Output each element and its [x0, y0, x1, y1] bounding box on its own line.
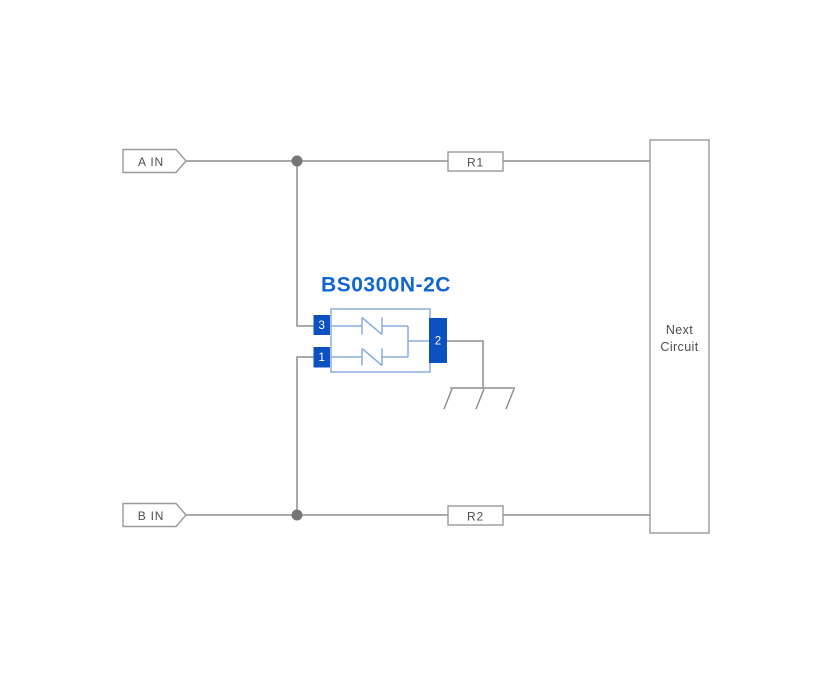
resistor-r2: R2	[448, 506, 503, 525]
pin-2: 2	[429, 318, 447, 363]
next-circuit-box: Next Circuit	[650, 140, 709, 533]
input-flag-b: B IN	[123, 504, 186, 527]
junction-dot-b	[292, 510, 303, 521]
wire-branch-b-to-pin1	[297, 357, 314, 515]
input-label-b: B IN	[138, 509, 165, 523]
pin-1-label: 1	[318, 352, 324, 364]
pin-1: 1	[314, 347, 331, 368]
resistor-r2-label: R2	[467, 509, 484, 523]
input-flag-a: A IN	[123, 150, 186, 173]
junction-dot-a	[292, 156, 303, 167]
pin-2-label: 2	[435, 336, 441, 348]
component-bs0300n: BS0300N-2C 3 1	[314, 274, 451, 373]
next-circuit-label-line2: Circuit	[660, 340, 698, 354]
resistor-r1: R1	[448, 152, 503, 171]
input-label-a: A IN	[138, 155, 164, 169]
pin-3-label: 3	[318, 320, 324, 332]
component-title: BS0300N-2C	[321, 274, 451, 297]
diagram-canvas: A IN B IN R1 R2 Next Circuit BS0300N-2C	[0, 0, 832, 675]
wire-branch-a-to-pin3	[297, 161, 314, 326]
schematic-page: A IN B IN R1 R2 Next Circuit BS0300N-2C	[0, 0, 832, 675]
pin-3: 3	[314, 315, 331, 335]
resistor-r1-label: R1	[467, 155, 484, 169]
ground-icon	[444, 388, 515, 409]
wire-pin2-to-ground	[447, 341, 483, 388]
next-circuit-label-line1: Next	[666, 323, 693, 337]
